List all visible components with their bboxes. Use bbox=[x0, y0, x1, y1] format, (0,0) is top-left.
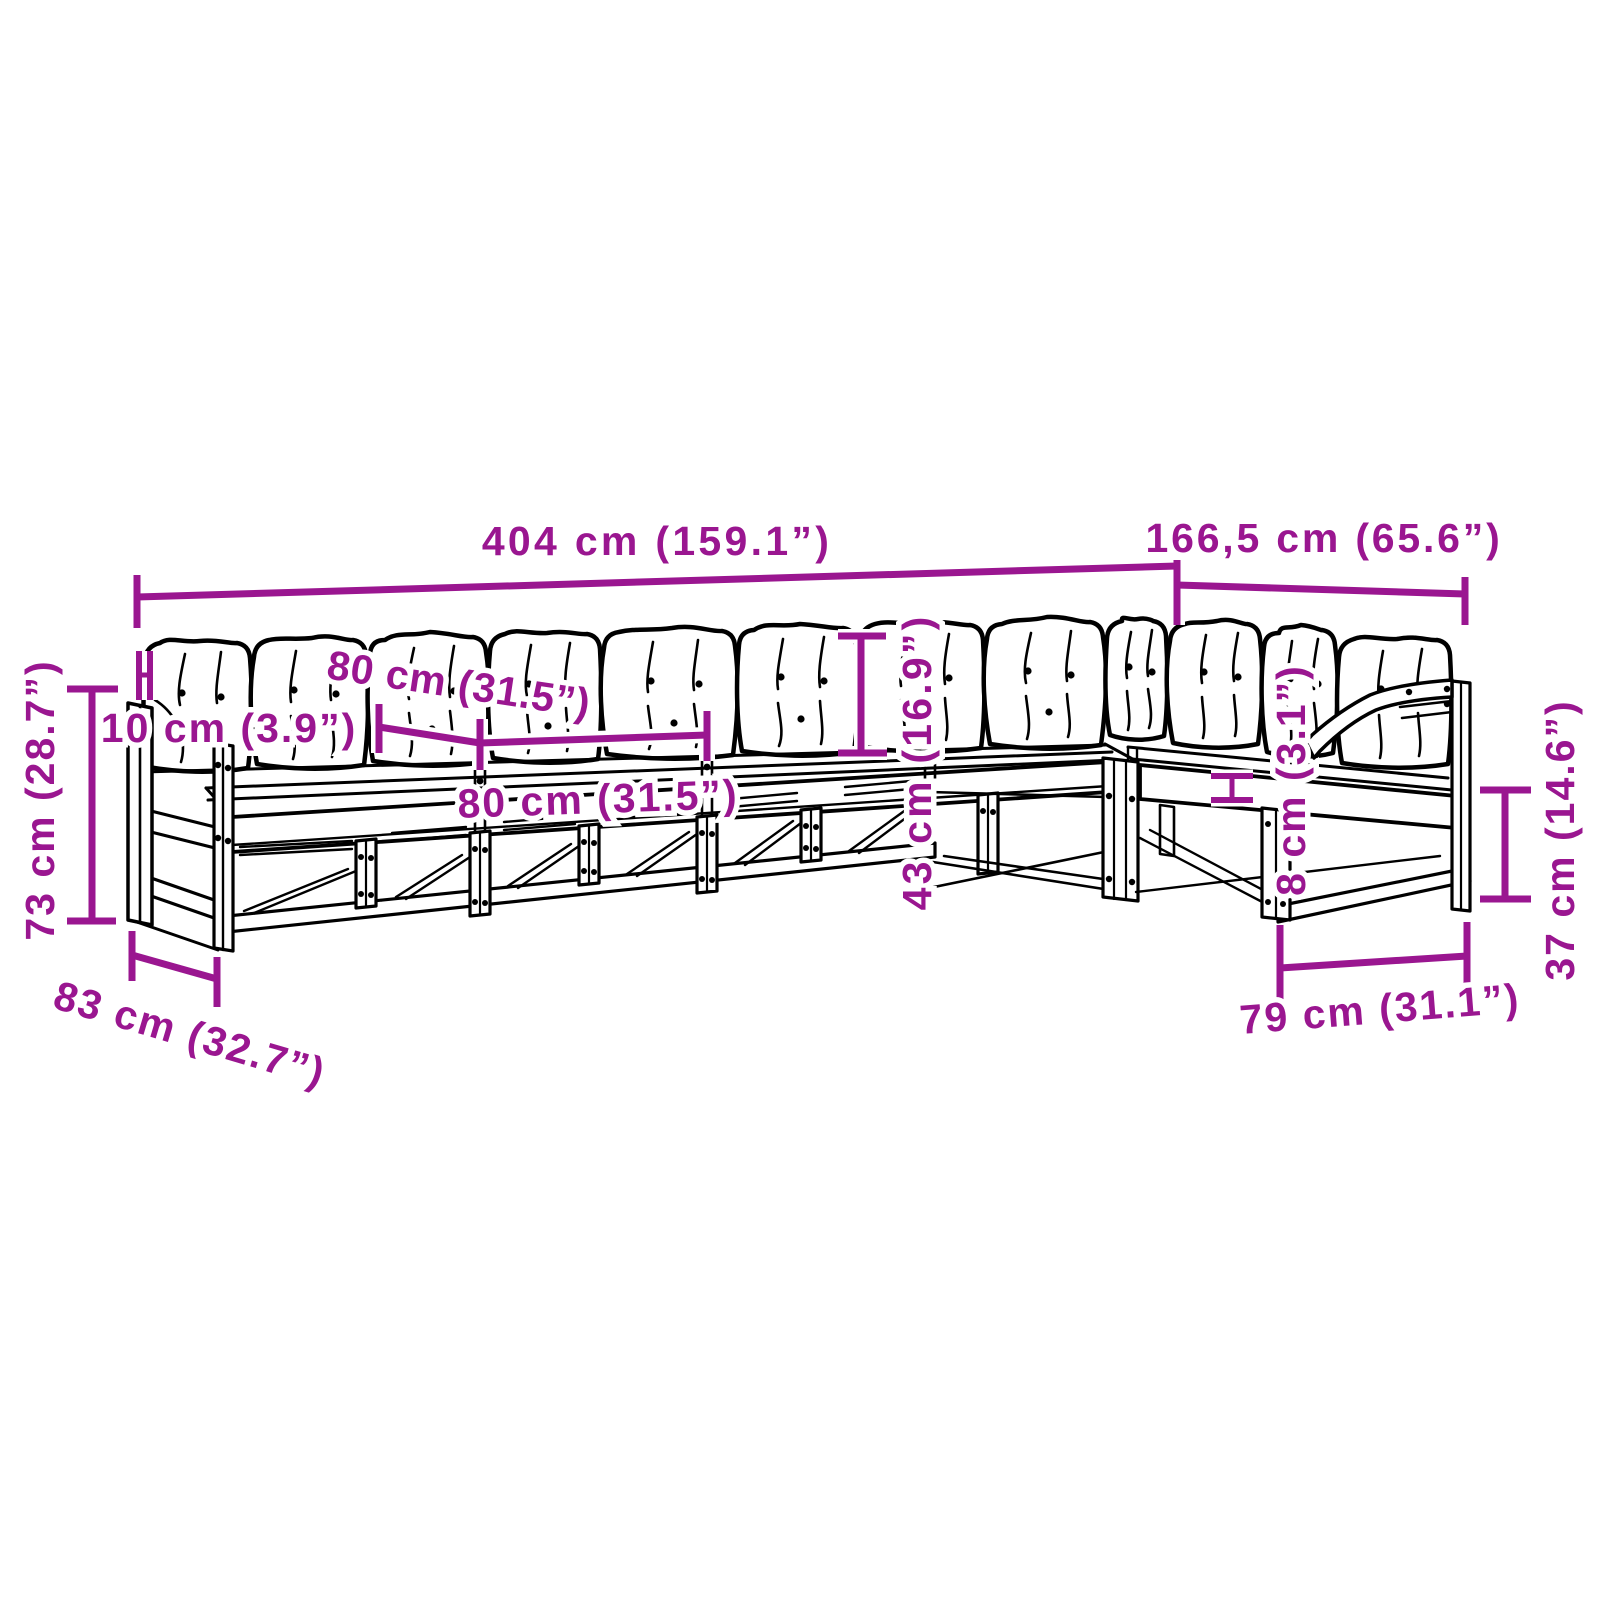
svg-text:43 cm (16.9”): 43 cm (16.9”) bbox=[894, 614, 940, 911]
svg-text:80 cm (31.5”): 80 cm (31.5”) bbox=[457, 771, 740, 827]
svg-text:166,5 cm (65.6”): 166,5 cm (65.6”) bbox=[1145, 515, 1502, 561]
svg-text:404 cm (159.1”): 404 cm (159.1”) bbox=[482, 518, 832, 564]
svg-text:8 cm (3.1”): 8 cm (3.1”) bbox=[1268, 664, 1314, 896]
svg-text:73 cm (28.7”): 73 cm (28.7”) bbox=[17, 659, 63, 940]
svg-text:37 cm (14.6”): 37 cm (14.6”) bbox=[1537, 699, 1583, 980]
svg-text:10 cm (3.9”): 10 cm (3.9”) bbox=[101, 705, 357, 751]
